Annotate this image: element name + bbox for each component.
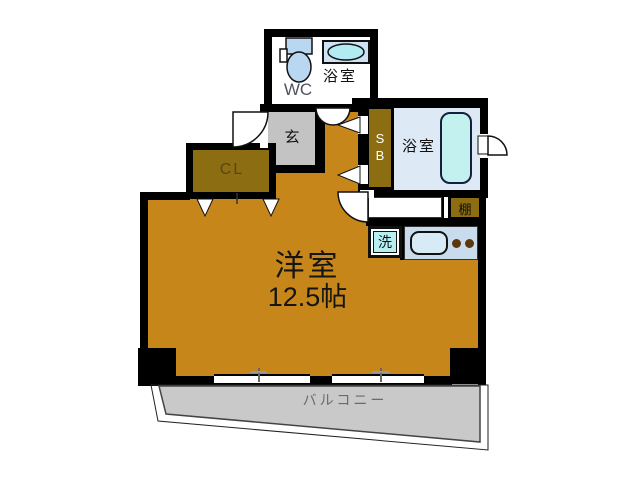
doorway bbox=[260, 112, 268, 148]
hallway-floor-2 bbox=[268, 173, 325, 198]
stove-burner-icon bbox=[465, 239, 474, 248]
wall bbox=[264, 29, 272, 112]
wall bbox=[315, 104, 325, 173]
wall bbox=[310, 376, 332, 385]
window-tick bbox=[372, 371, 389, 373]
main-room-name: 洋室 bbox=[275, 250, 341, 283]
wall bbox=[176, 376, 214, 385]
counter-strip bbox=[368, 197, 442, 218]
shelf-door-lines bbox=[442, 197, 450, 218]
hallway-floor bbox=[325, 112, 358, 198]
window bbox=[332, 374, 424, 385]
window bbox=[214, 374, 310, 385]
floorplan: 洗 bbox=[0, 0, 640, 480]
balcony-label: バルコニー bbox=[290, 391, 400, 409]
entrance-label: 玄 bbox=[282, 127, 302, 145]
corner-pillar bbox=[138, 348, 176, 386]
window-tick bbox=[250, 371, 267, 373]
doorway bbox=[360, 190, 374, 198]
main-room-label: 洋室 12.5帖 bbox=[225, 248, 390, 314]
bathtub bbox=[440, 112, 472, 184]
bath-top-label: 浴室 bbox=[316, 66, 364, 84]
bath-right-label: 浴室 bbox=[396, 136, 442, 154]
stove-burner-icon bbox=[452, 239, 461, 248]
shoe-box-label: SB bbox=[366, 120, 394, 176]
main-room-size: 12.5帖 bbox=[268, 283, 348, 313]
wall bbox=[424, 376, 452, 385]
shelf-label: 棚 bbox=[450, 199, 480, 217]
wall bbox=[264, 29, 378, 37]
bathtub-box-top bbox=[322, 40, 370, 64]
corner-pillar bbox=[450, 348, 484, 384]
sink-icon bbox=[410, 231, 448, 255]
doorway bbox=[480, 134, 488, 158]
wc-label: WC bbox=[278, 80, 318, 100]
closet-label: CL bbox=[210, 160, 254, 180]
